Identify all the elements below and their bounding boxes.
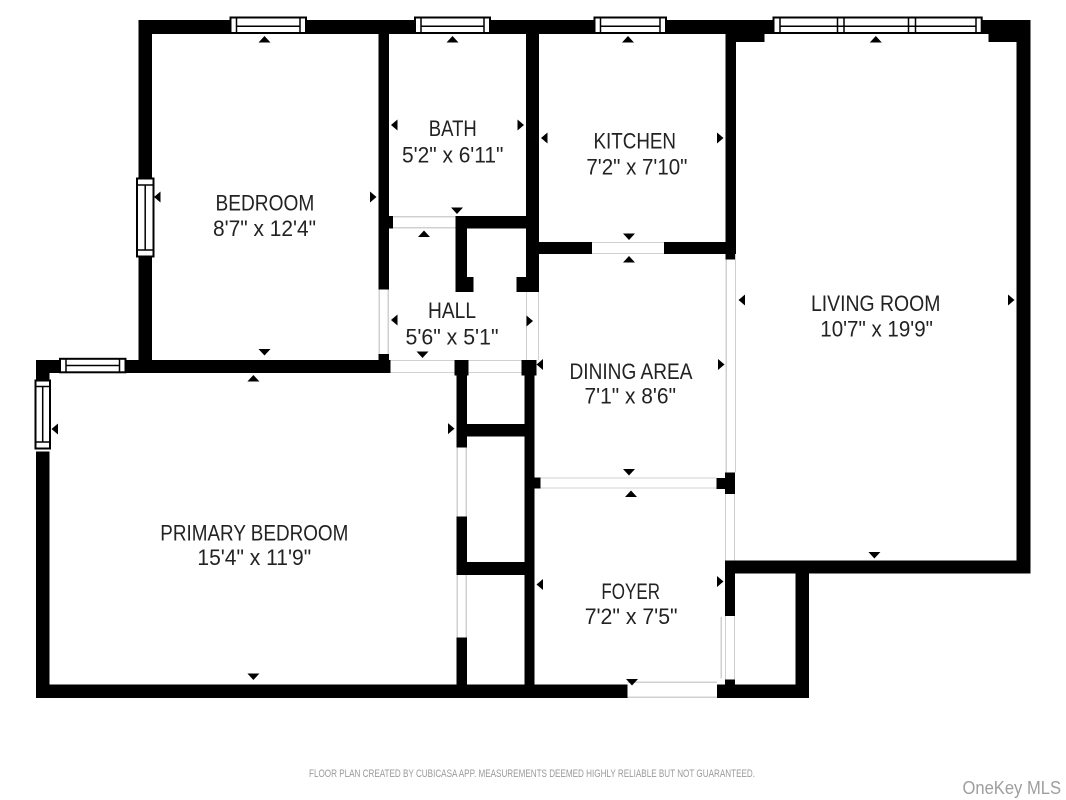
svg-text:FOYER: FOYER (601, 579, 660, 604)
svg-text:FLOOR PLAN CREATED BY CUBICASA: FLOOR PLAN CREATED BY CUBICASA APP. MEAS… (309, 768, 755, 780)
svg-text:7'2" x 7'5": 7'2" x 7'5" (585, 604, 678, 629)
svg-text:5'2" x 6'11": 5'2" x 6'11" (402, 143, 503, 168)
svg-text:DINING AREA: DINING AREA (570, 359, 693, 384)
svg-text:7'1" x 8'6": 7'1" x 8'6" (585, 384, 677, 409)
svg-text:BEDROOM: BEDROOM (216, 191, 315, 216)
svg-text:5'6" x 5'1": 5'6" x 5'1" (406, 325, 499, 350)
svg-text:BATH: BATH (429, 116, 477, 141)
svg-text:PRIMARY BEDROOM: PRIMARY BEDROOM (160, 521, 348, 546)
svg-text:15'4" x 11'9": 15'4" x 11'9" (197, 545, 311, 570)
svg-text:10'7" x 19'9": 10'7" x 19'9" (820, 316, 933, 341)
svg-text:KITCHEN: KITCHEN (594, 129, 677, 154)
svg-text:HALL: HALL (428, 298, 476, 323)
svg-text:7'2" x 7'10": 7'2" x 7'10" (586, 155, 687, 180)
svg-text:OneKey MLS: OneKey MLS (963, 778, 1062, 798)
svg-text:8'7" x 12'4": 8'7" x 12'4" (213, 216, 316, 241)
svg-text:LIVING ROOM: LIVING ROOM (811, 291, 940, 316)
